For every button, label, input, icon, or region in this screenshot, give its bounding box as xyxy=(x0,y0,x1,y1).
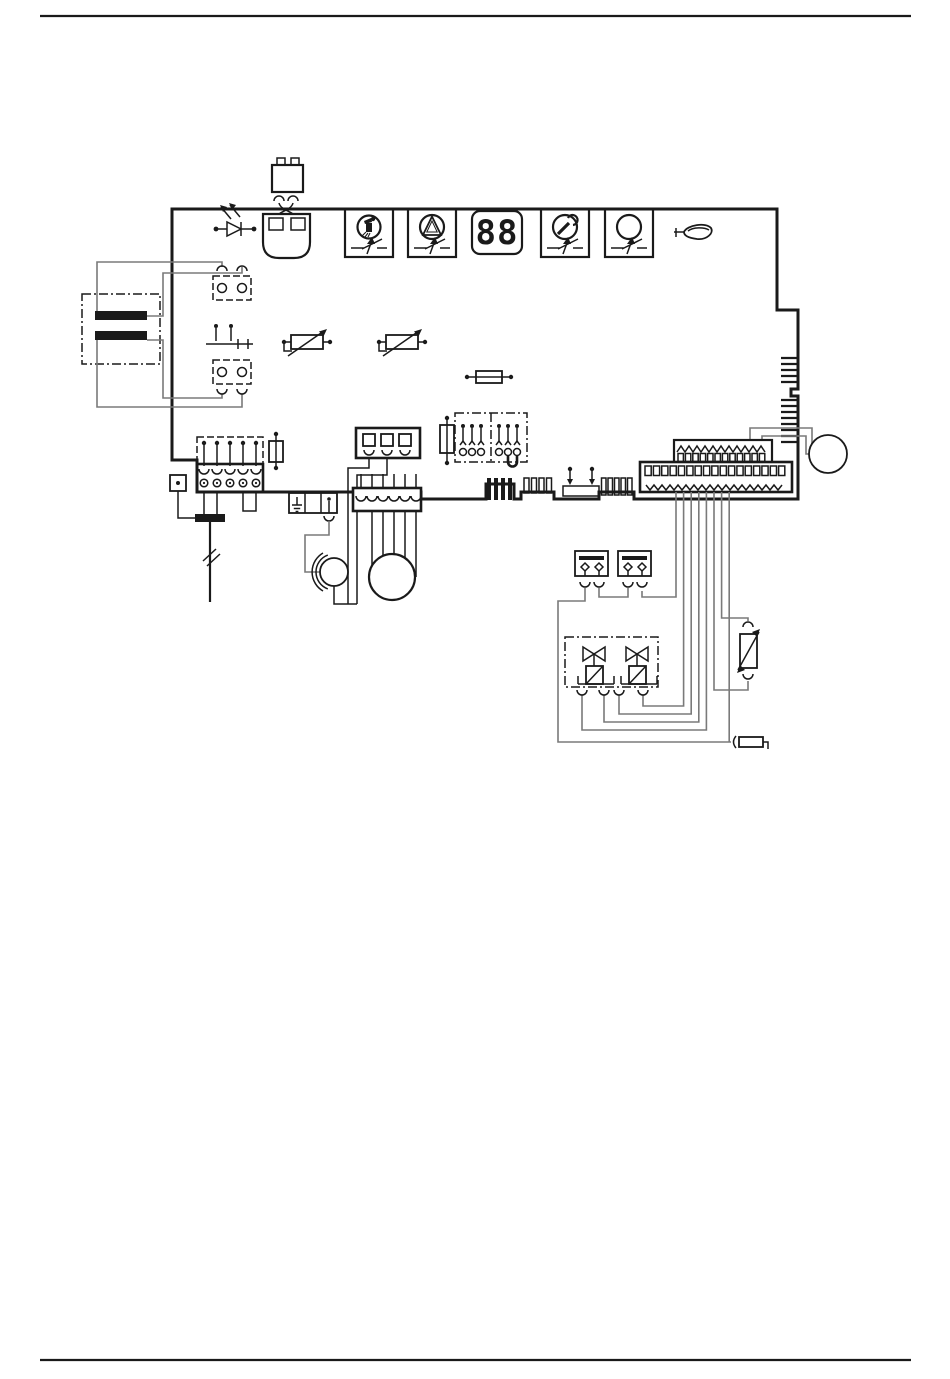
remote-control-socket xyxy=(263,214,310,258)
valve-sockets xyxy=(577,690,648,695)
thermostat-series-link xyxy=(599,588,628,597)
limit-thermostat-1 xyxy=(575,551,608,587)
transformer-boundary xyxy=(82,294,160,364)
gas-valve-assembly xyxy=(565,637,658,695)
limit-thermostats xyxy=(575,551,651,587)
modulating-coil xyxy=(737,622,760,679)
mains-junction-bar xyxy=(195,514,225,522)
fan-motor xyxy=(809,435,847,473)
temperature-sensor xyxy=(734,736,769,749)
wiring-harness xyxy=(558,492,748,742)
pump-circuit xyxy=(369,511,416,600)
transformer-winding-secondary xyxy=(95,331,147,340)
pump-motor xyxy=(369,554,415,600)
wiring-diagram: 88 xyxy=(0,0,950,1379)
mains-supply xyxy=(170,475,256,602)
lower-multipin-connector xyxy=(640,462,792,492)
earth-tab xyxy=(170,475,195,518)
display-value: 88 xyxy=(476,213,519,253)
igniter-motor xyxy=(320,558,348,586)
transformer-winding-primary xyxy=(95,311,147,320)
seven-segment-display: 88 xyxy=(472,211,522,254)
limit-thermostat-2 xyxy=(618,551,651,587)
document-page: 88 xyxy=(0,0,950,1379)
